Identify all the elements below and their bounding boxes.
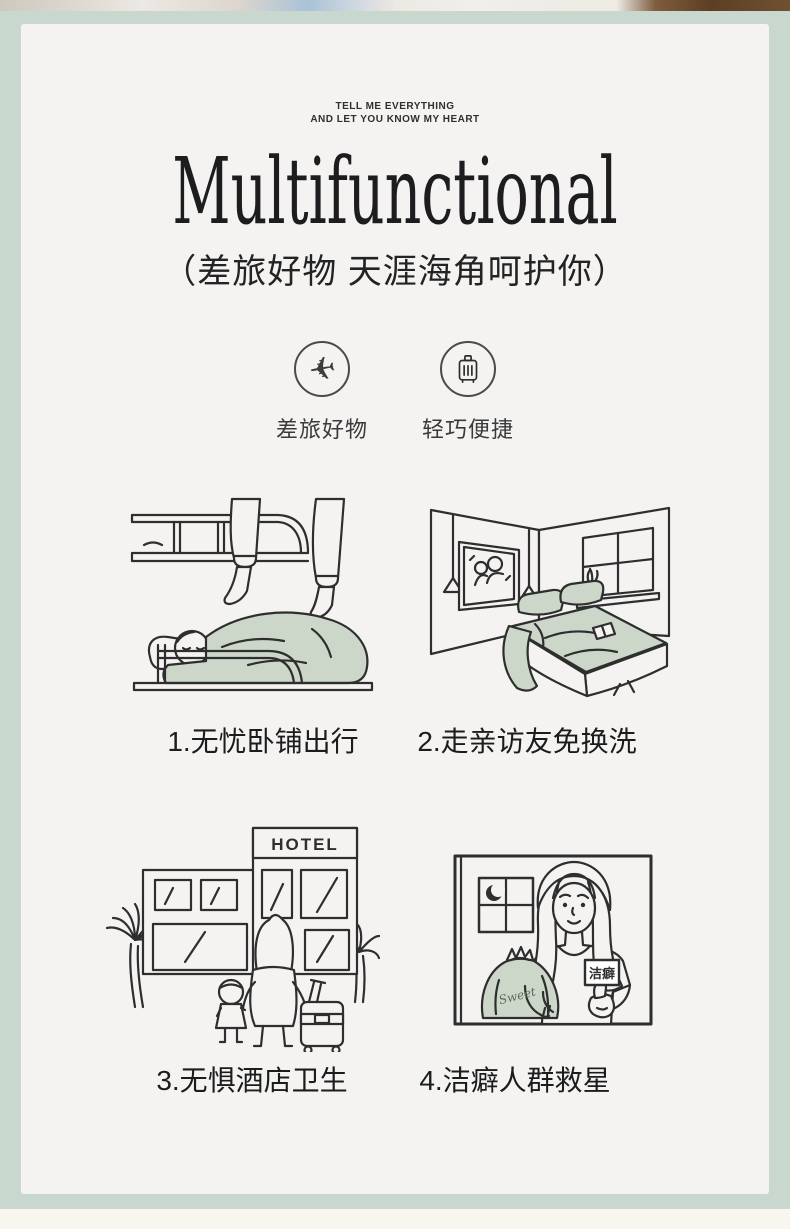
- tagline-line2: AND LET YOU KNOW MY HEART: [21, 113, 769, 126]
- feature-travel: ✈ 差旅好物: [257, 341, 387, 444]
- illustration-clean-freak: 洁癖 Sweet: [445, 848, 660, 1038]
- airplane-icon: ✈: [294, 341, 350, 397]
- suitcase-icon: [440, 341, 496, 397]
- illustration-guest-bedroom: [415, 488, 685, 700]
- tagline: TELL ME EVERYTHING AND LET YOU KNOW MY H…: [21, 100, 769, 126]
- hotel-sign: HOTEL: [271, 835, 339, 854]
- scene-2-caption: 2.走亲访友免换洗: [347, 725, 707, 759]
- tagline-line1: TELL ME EVERYTHING: [21, 100, 769, 113]
- bottom-cream-strip: [0, 1209, 790, 1229]
- page-title: Multifunctional: [163, 142, 627, 242]
- page-subtitle: （差旅好物 天涯海角呵护你）: [21, 250, 769, 294]
- feature-row: ✈ 差旅好物 轻巧便捷: [21, 341, 769, 444]
- illustration-hotel-entrance: HOTEL: [105, 812, 380, 1052]
- top-photo-strip: [0, 0, 790, 11]
- feature-travel-label: 差旅好物: [276, 412, 368, 444]
- feature-light: 轻巧便捷: [403, 341, 533, 444]
- scene-4-caption: 4.洁癖人群救星: [335, 1064, 695, 1098]
- badge-text: 洁癖: [589, 966, 615, 981]
- feature-light-label: 轻巧便捷: [422, 412, 514, 444]
- content-panel: TELL ME EVERYTHING AND LET YOU KNOW MY H…: [21, 24, 769, 1194]
- illustration-sleeper-bunk: [120, 495, 385, 707]
